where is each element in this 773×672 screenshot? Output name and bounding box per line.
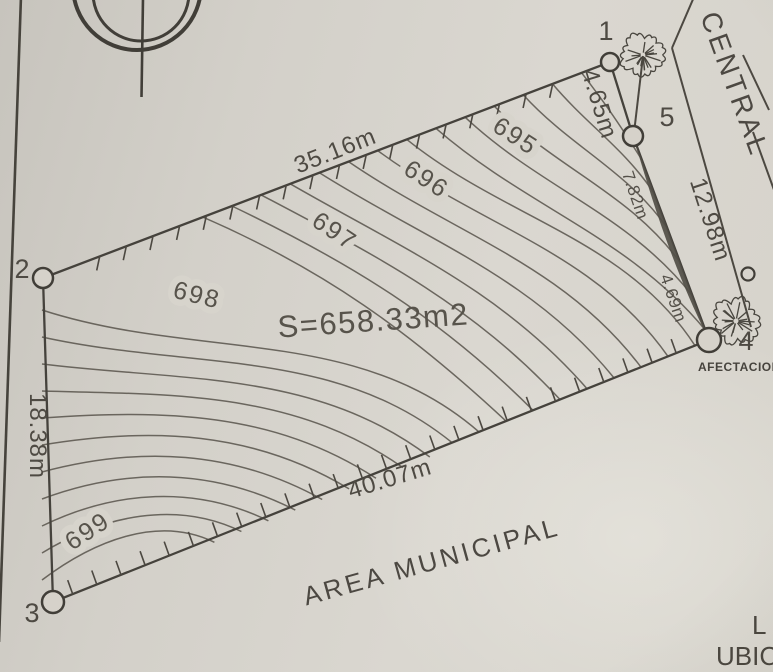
point-4-label: 4	[738, 326, 753, 356]
small-circle-marker	[742, 268, 755, 281]
sheet-border	[0, 0, 21, 642]
point-3-marker	[42, 591, 64, 613]
surface-area-label: S=658.33m2	[276, 296, 470, 344]
contour-label-695: 695	[488, 112, 543, 161]
point-3-label: 3	[24, 598, 39, 628]
survey-plan-drawing: 1 2 3 4 5 35.16m 18.38m 40.07m 12.98m 4.…	[0, 0, 773, 672]
contour-label-696: 696	[399, 155, 454, 204]
point-5-label: 5	[659, 102, 674, 132]
boundary-tick-marks	[68, 84, 677, 594]
street-name-label: CENTRAL	[694, 7, 773, 160]
point-4-marker	[697, 328, 721, 352]
point-1-marker	[601, 53, 619, 71]
point-2-label: 2	[14, 254, 29, 284]
dimension-left: 18.38m	[24, 393, 51, 479]
tree-icon	[620, 33, 665, 77]
dimension-street-frontage: 12.98m	[684, 175, 736, 265]
affectation-label: AFECTACION	[698, 360, 773, 374]
municipal-zone-label: AREA MUNICIPAL	[300, 511, 564, 611]
north-symbol-icon	[73, 0, 201, 97]
contour-label-698: 698	[170, 276, 223, 315]
point-5-marker	[623, 126, 643, 146]
corner-text-ubicacion: UBIC	[716, 641, 773, 671]
point-1-label: 1	[598, 16, 613, 46]
dimension-bottom: 40.07m	[345, 453, 435, 504]
point-2-marker	[33, 268, 53, 288]
corner-text-l: L	[752, 610, 766, 640]
survey-plan-photo: 1 2 3 4 5 35.16m 18.38m 40.07m 12.98m 4.…	[0, 0, 773, 672]
dimension-top: 35.16m	[290, 123, 380, 180]
